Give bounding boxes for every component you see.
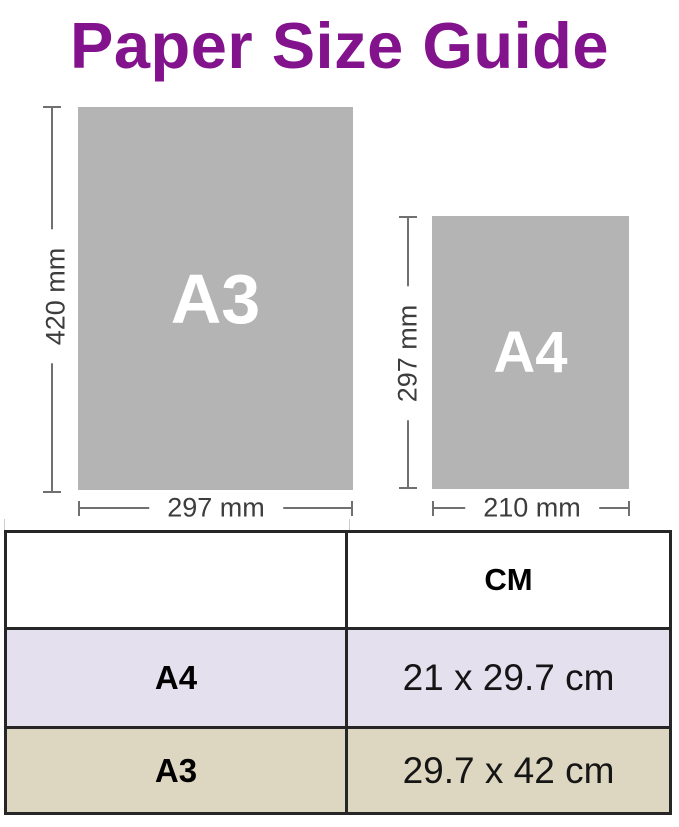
header-cm-cell: CM xyxy=(348,533,669,627)
a3-height-dim-label: 420 mm xyxy=(37,229,74,363)
a4-height-dim-line xyxy=(407,217,409,489)
row-a3-cm-cell: 29.7 x 42 cm xyxy=(348,729,669,812)
a3-width-dim-label: 297 mm xyxy=(149,491,283,526)
a3-width-dim-cap-right xyxy=(351,501,353,516)
page-title: Paper Size Guide xyxy=(0,8,679,83)
a3-paper-rect: A3 xyxy=(78,107,353,490)
row-a3-size-cell: A3 xyxy=(7,729,348,812)
table-row: A3 29.7 x 42 cm xyxy=(7,726,669,812)
row-a4-size-cell: A4 xyxy=(7,630,348,726)
a4-height-dim-cap-bottom xyxy=(399,487,417,489)
a3-height-dim-cap-top xyxy=(43,106,61,108)
a3-height-dim-line xyxy=(51,107,53,493)
a4-width-dim-cap-right xyxy=(628,501,630,516)
a3-height-dim-cap-bottom xyxy=(43,491,61,493)
paper-size-table: CM A4 21 x 29.7 cm A3 29.7 x 42 cm xyxy=(4,530,672,815)
a3-width-dim-cap-left xyxy=(78,501,80,516)
a4-paper-label: A4 xyxy=(493,319,567,386)
gridline-stub-left xyxy=(4,519,5,530)
paper-size-guide-infographic: Paper Size Guide A3 A4 420 mm 297 mm 297… xyxy=(0,0,679,827)
row-a4-cm-cell: 21 x 29.7 cm xyxy=(348,630,669,726)
a4-width-dim-label: 210 mm xyxy=(465,491,599,526)
a4-height-dim-cap-top xyxy=(399,216,417,218)
table-row: A4 21 x 29.7 cm xyxy=(7,627,669,726)
header-size-cell xyxy=(7,533,348,627)
gridline-stub-divider xyxy=(349,519,350,530)
a4-width-dim-cap-left xyxy=(432,501,434,516)
a3-paper-label: A3 xyxy=(171,259,260,339)
table-header-row: CM xyxy=(7,533,669,627)
a4-paper-rect: A4 xyxy=(432,216,629,489)
